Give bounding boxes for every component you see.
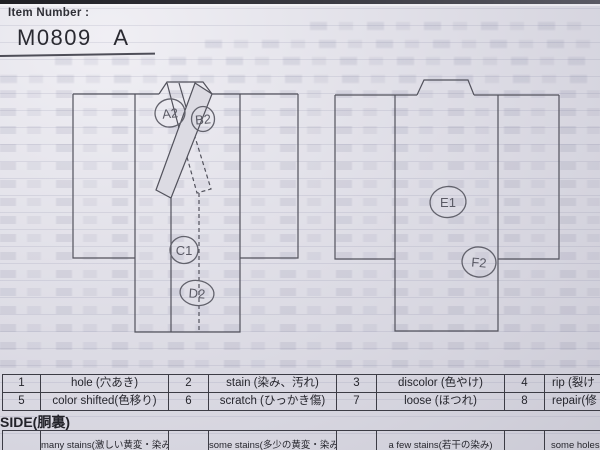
condition-code-table: 1 hole (穴あき) 2 stain (染み、汚れ) 3 discolor … — [2, 374, 600, 411]
lining-checkbox-cell — [3, 431, 41, 450]
back-right-sleeve — [498, 95, 559, 259]
code-label-cell: stain (染み、汚れ) — [209, 375, 337, 393]
damage-marks: A2 B2 C1 D2 E1 F2 — [152, 96, 498, 307]
damage-mark-c1: C1 — [168, 235, 199, 266]
lining-label-cell: many stains(激しい黄変・染み) — [41, 431, 169, 450]
front-right-sleeve — [240, 94, 298, 258]
damage-mark-label: A2 — [161, 105, 178, 122]
code-number-cell: 1 — [3, 375, 41, 393]
lining-section-title: SIDE(胴裏) — [0, 412, 70, 432]
back-body — [395, 95, 498, 331]
kimono-front-diagram — [73, 82, 298, 332]
front-left-sleeve — [73, 94, 135, 258]
code-label-cell: color shifted(色移り) — [41, 393, 169, 411]
damage-mark-d2: D2 — [179, 279, 216, 308]
code-label-cell: scratch (ひっかき傷) — [209, 393, 337, 411]
lining-label-cell: some holes(穴 — [545, 431, 600, 450]
code-number-cell: 8 — [505, 393, 545, 411]
lining-row: many stains(激しい黄変・染み) some stains(多少の黄変・… — [3, 431, 600, 450]
damage-mark-label: E1 — [440, 195, 456, 210]
code-number-cell: 5 — [3, 393, 41, 411]
code-label-cell: repair(修 — [545, 393, 600, 411]
lining-checkbox-cell — [505, 431, 545, 450]
lining-label-cell: a few stains(若干の染み) — [377, 431, 505, 450]
photo-top-edge-highlight — [0, 4, 600, 6]
damage-mark-label: F2 — [471, 254, 487, 270]
damage-mark-label: C1 — [176, 243, 193, 258]
back-collar — [417, 80, 474, 95]
code-number-cell: 7 — [337, 393, 377, 411]
code-label-cell: rip (裂け — [545, 375, 600, 393]
code-number-cell: 2 — [169, 375, 209, 393]
back-left-sleeve — [335, 95, 395, 259]
lining-checkbox-cell — [337, 431, 377, 450]
condition-sheet-photo: Item Number : M0809 A — [0, 0, 600, 450]
code-number-cell: 4 — [505, 375, 545, 393]
item-number-label: Item Number : — [8, 7, 89, 19]
lining-checkbox-cell — [169, 431, 209, 450]
damage-mark-f2: F2 — [460, 245, 498, 280]
lining-label-cell: some stains(多少の黄変・染み) — [209, 431, 337, 450]
damage-mark-label: D2 — [188, 285, 206, 301]
code-label-cell: hole (穴あき) — [41, 375, 169, 393]
code-label-cell: discolor (色やけ) — [377, 375, 505, 393]
code-number-cell: 6 — [169, 393, 209, 411]
item-number-value: M0809 A — [17, 25, 130, 51]
damage-mark-label: B2 — [194, 111, 211, 127]
lining-table: many stains(激しい黄変・染み) some stains(多少の黄変・… — [2, 430, 600, 450]
code-row-2: 5 color shifted(色移り) 6 scratch (ひっかき傷) 7… — [3, 393, 600, 411]
code-label-cell: loose (ほつれ) — [377, 393, 505, 411]
damage-mark-e1: E1 — [428, 185, 467, 220]
code-number-cell: 3 — [337, 375, 377, 393]
code-row-1: 1 hole (穴あき) 2 stain (染み、汚れ) 3 discolor … — [3, 375, 600, 393]
